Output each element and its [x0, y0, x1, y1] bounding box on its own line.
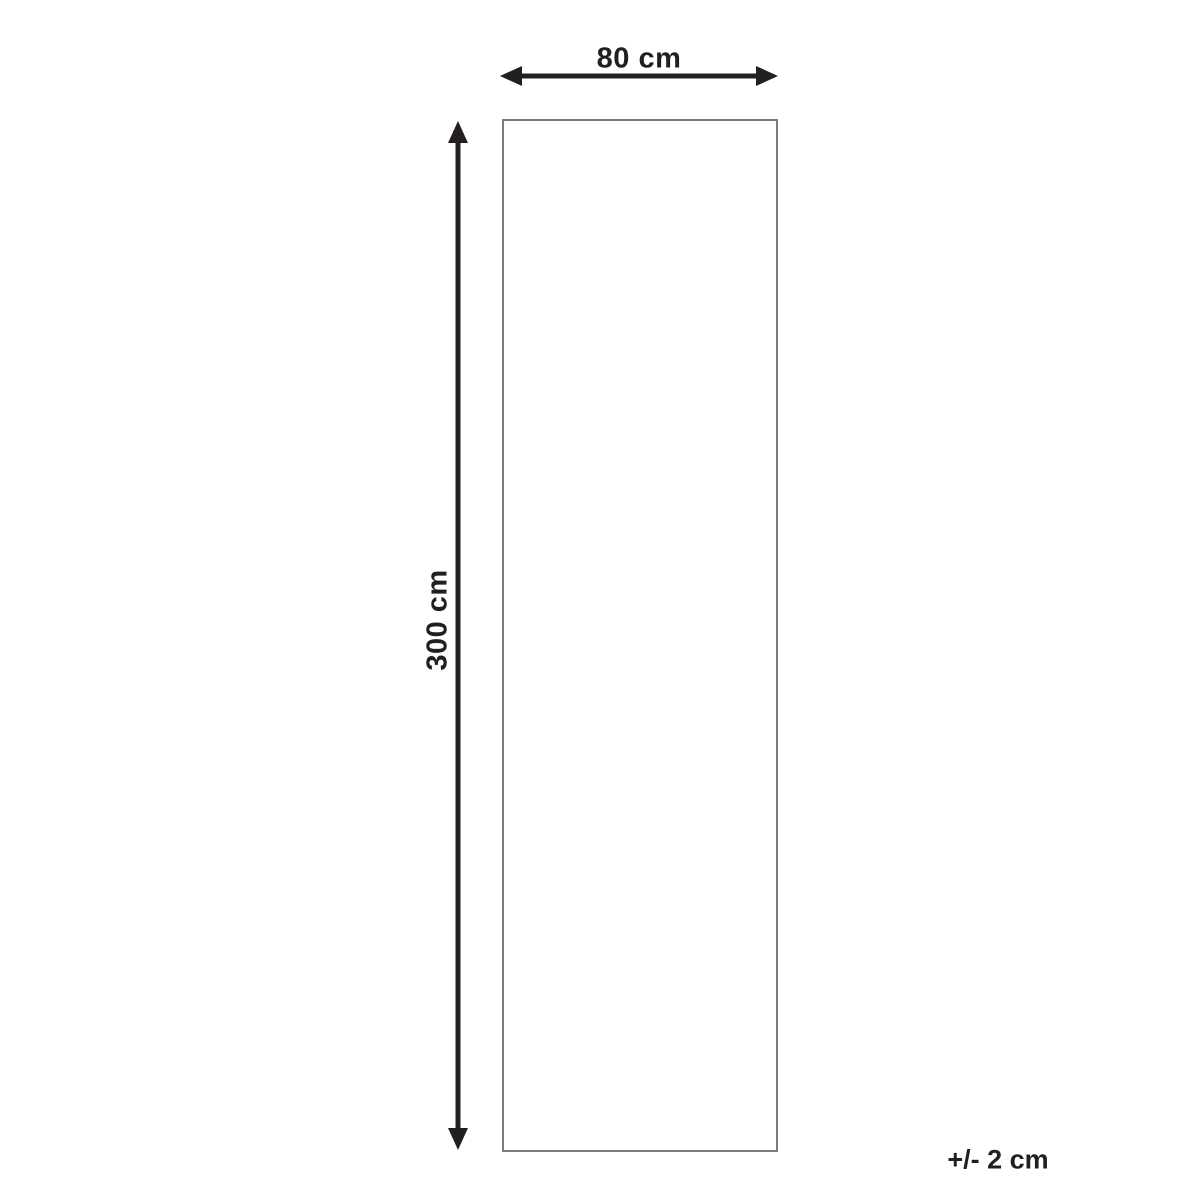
tolerance-label: +/- 2 cm: [947, 1145, 1048, 1176]
dimension-diagram: 80 cm 300 cm +/- 2 cm: [0, 0, 1200, 1200]
product-outline-rectangle: [502, 119, 778, 1152]
width-dimension-label: 80 cm: [597, 43, 682, 76]
height-dimension-label: 300 cm: [422, 569, 455, 670]
